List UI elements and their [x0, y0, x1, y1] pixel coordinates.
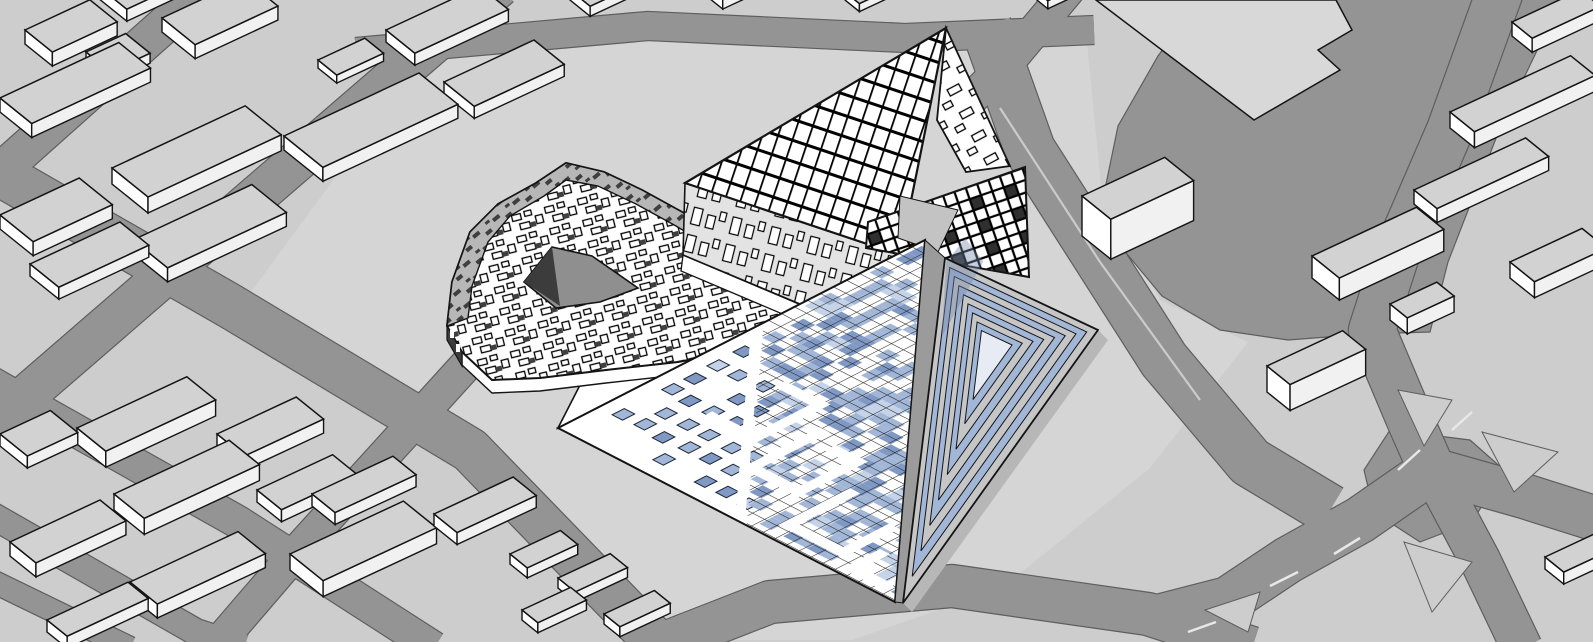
render-stage [0, 0, 1593, 642]
model-viewport[interactable] [0, 0, 1593, 642]
